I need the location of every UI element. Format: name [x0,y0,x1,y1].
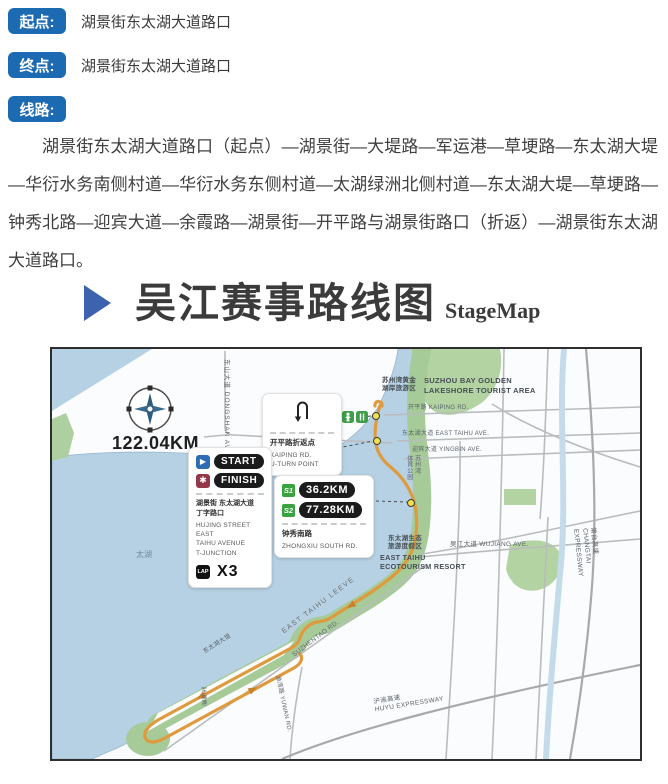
station-s1-badge: S1 [282,484,295,497]
finish-pill: FINISH [214,473,264,488]
play-triangle-icon [84,285,111,321]
route-badge: 线路: [8,96,66,122]
area-label-suzhou-bay-zh: 苏州湾黄金 湖岸旅游区 [382,377,416,394]
stations-label-en: ZHONGXIU SOUTH RD. [282,542,366,551]
start-pill: START [214,454,264,469]
finish-flag-icon: ✱ [196,474,210,488]
start-point-badge: 起点: [8,8,66,34]
article-page: 起点: 湖景街东太湖大道路口 终点: 湖景街东太湖大道路口 线路: 湖景街东太湖… [0,0,668,784]
road-label-east-taihu-ave: 东太湖大道 EAST TAIHU AVE. [402,431,489,439]
start-finish-label-en: HUJING STREET EAST TAIHU AVENUE T-JUNCTI… [196,521,264,559]
uturn-callout: 开平路折返点 KAIPING RD. U-TURN POINT [262,393,342,476]
info-rows: 起点: 湖景街东太湖大道路口 终点: 湖景街东太湖大道路口 线路: [8,8,231,140]
start-finish-callout: ▶ START ✱ FINISH 湖景街 东太湖大道 丁字路口 HUJING S… [188,447,272,588]
start-point-row: 起点: 湖景街东太湖大道路口 [8,8,231,34]
uturn-arrow-icon [270,400,334,427]
station-s2-badge: S2 [282,504,295,517]
label-junyungang: 军运港 [198,687,206,706]
area-label-sports-park: 苏州湾 体育公园 [404,455,420,480]
station-s2-distance: 77.28KM [299,502,362,518]
compass-rose [127,386,174,433]
stations-label-zh: 钟秀南路 [282,529,366,540]
start-play-icon: ▶ [196,455,210,469]
end-point-row: 终点: 湖景街东太湖大道路口 [8,52,231,78]
route-point-uturn [372,412,380,420]
total-distance: 122.04KM [112,433,199,454]
area-label-suzhou-bay-en: SUZHOU BAY GOLDEN LAKESHORE TOURIST AREA [424,376,536,396]
road-label-kaiping-rd: 开平路 KAIPING RD. [408,405,469,413]
stage-map: 122.04KM 东山大道 DONGSHAN AVE. 苏州湾黄金 湖岸旅游区 … [50,347,642,761]
road-label-wujiang-ave: 吴江大道 WUJIANG AVE. [450,541,529,549]
end-point-badge: 终点: [8,52,66,78]
route-point-zhongxiu [407,499,415,507]
stations-callout: S1 36.2KM S2 77.28KM 钟秀南路 ZHONGXIU SOUTH… [274,475,374,558]
service-station-restroom-icon [356,411,368,423]
lap-count: X3 [217,563,239,581]
road-label-yingbin-ave: 迎宾大道 YINGBIN AVE. [412,447,482,455]
route-description: 湖景街东太湖大道路口（起点）—湖景街—大堤路—军运港—草埂路—东太湖大堤—华衍水… [8,128,658,280]
road-label-changtai-expressway: 常台高速 CHANGTAI EXPRESSWAY [571,527,601,577]
road-label-dongshan-ave: 东山大道 DONGSHAN AVE. [222,359,230,458]
lap-icon: LAP [196,565,210,579]
start-finish-label-zh: 湖景街 东太湖大道 丁字路口 [196,499,264,519]
page-title: 吴江赛事路线图 [135,283,436,324]
uturn-label-en: KAIPING RD. U-TURN POINT [270,451,334,470]
service-station-pedestrian-icon [342,411,354,423]
end-point-value: 湖景街东太湖大道路口 [81,55,231,76]
start-point-value: 湖景街东太湖大道路口 [81,11,231,32]
uturn-label-zh: 开平路折返点 [270,438,334,449]
lake-label-taihu: 太湖 [136,549,152,560]
route-row: 线路: [8,96,231,122]
page-title-en: StageMap [445,298,540,324]
area-label-resort-en: EAST TAIHU ECOTOURISM RESORT [380,553,466,572]
route-point-start-finish [373,437,381,445]
area-label-resort-zh: 东太湖生态 旅游度假区 [388,535,422,552]
section-title: 吴江赛事路线图 StageMap [84,282,540,324]
station-s1-distance: 36.2KM [299,482,355,498]
